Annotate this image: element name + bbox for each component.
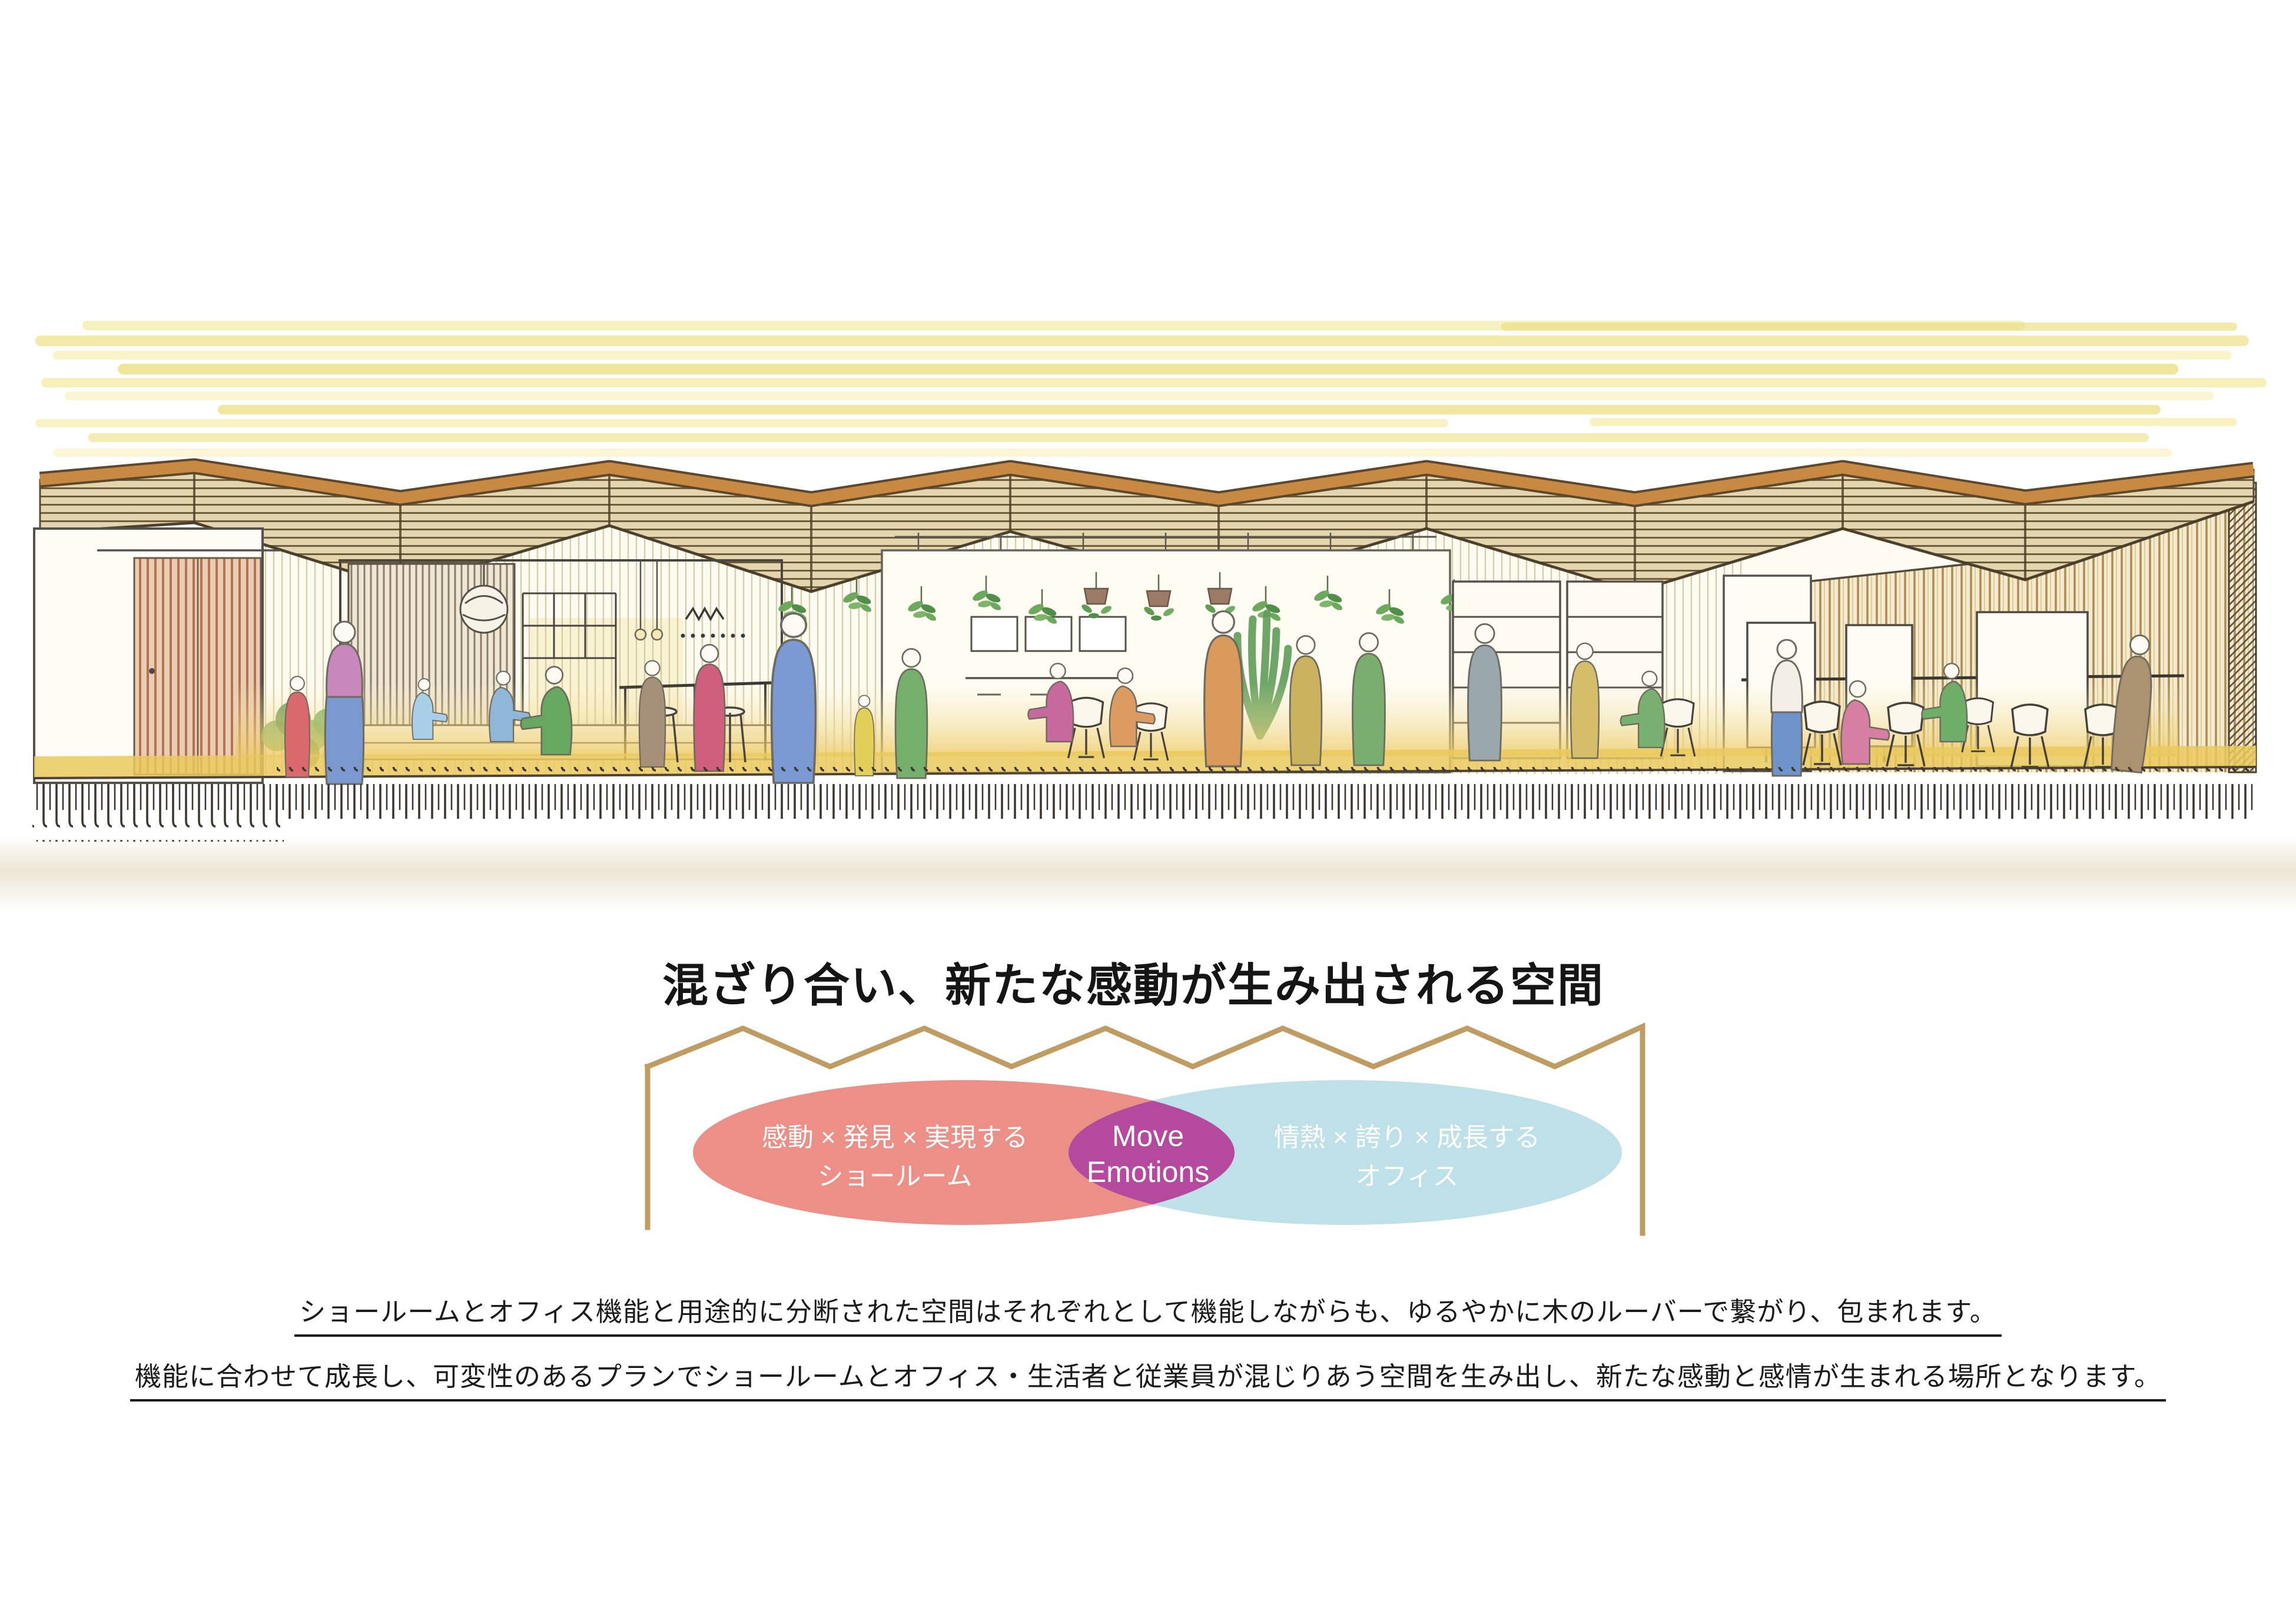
venn-diagram: 感動 × 発見 × 実現する ショールーム Move Emotions 情熱 ×… bbox=[589, 1001, 1707, 1248]
description-line-1: ショールームとオフィス機能と用途的に分断された空間はそれぞれとして機能しながらも… bbox=[0, 1290, 2296, 1337]
description-line-2-text: 機能に合わせて成長し、可変性のあるプランでショールームとオフィス・生活者と従業員… bbox=[130, 1355, 2166, 1402]
description-line-1-text: ショールームとオフィス機能と用途的に分断された空間はそれぞれとして機能しながらも… bbox=[294, 1290, 2002, 1337]
venn-overlap-label-line2: Emotions bbox=[1087, 1155, 1209, 1188]
description-line-2: 機能に合わせて成長し、可変性のあるプランでショールームとオフィス・生活者と従業員… bbox=[0, 1355, 2296, 1402]
slide-page: 混ざり合い、新たな感動が生み出される空間 感動 × 発見 × 実現する ショール… bbox=[0, 0, 2296, 1624]
ground bbox=[0, 767, 2296, 912]
venn-overlap-label-line1: Move bbox=[1112, 1120, 1184, 1153]
venn-left-label-line2: ショールーム bbox=[818, 1162, 973, 1191]
sky-strokes bbox=[35, 321, 2267, 457]
architectural-sketch bbox=[0, 0, 2296, 918]
venn-right-label-line2: オフィス bbox=[1355, 1162, 1458, 1191]
venn-left-label-line1: 感動 × 発見 × 実現する bbox=[762, 1123, 1028, 1152]
venn-right-label-line1: 情熱 × 誇り × 成長する bbox=[1274, 1123, 1540, 1152]
